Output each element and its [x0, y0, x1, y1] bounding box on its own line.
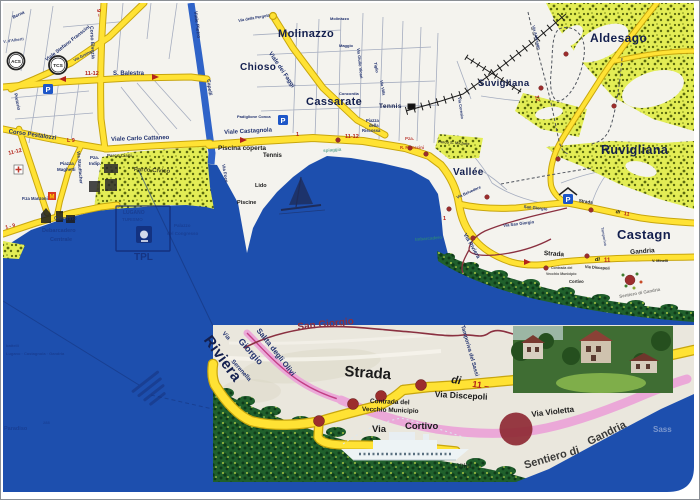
svg-text:M: M [50, 195, 55, 201]
acs-icon: ACS [8, 53, 25, 70]
road-terminus-circle [270, 13, 277, 20]
hospital-cross-icon [14, 165, 23, 174]
svg-text:P: P [45, 85, 50, 94]
station-square [408, 104, 415, 109]
svg-text:TCS: TCS [53, 63, 63, 69]
map-graphics: ACS TCS P P P M [1, 1, 700, 500]
photo-inset [511, 326, 673, 393]
parking-icon: P [278, 115, 288, 125]
inset-landmark-circle [500, 413, 533, 446]
migros-m-icon: M [48, 192, 56, 201]
tcs-icon: TCS [49, 56, 67, 74]
parking-icon: P [43, 84, 53, 94]
scanned-city-map: ACS TCS P P P M [0, 0, 700, 500]
svg-text:ACS: ACS [11, 59, 21, 64]
inset-map [212, 325, 694, 492]
svg-text:P: P [280, 116, 285, 125]
svg-text:P: P [565, 195, 570, 204]
